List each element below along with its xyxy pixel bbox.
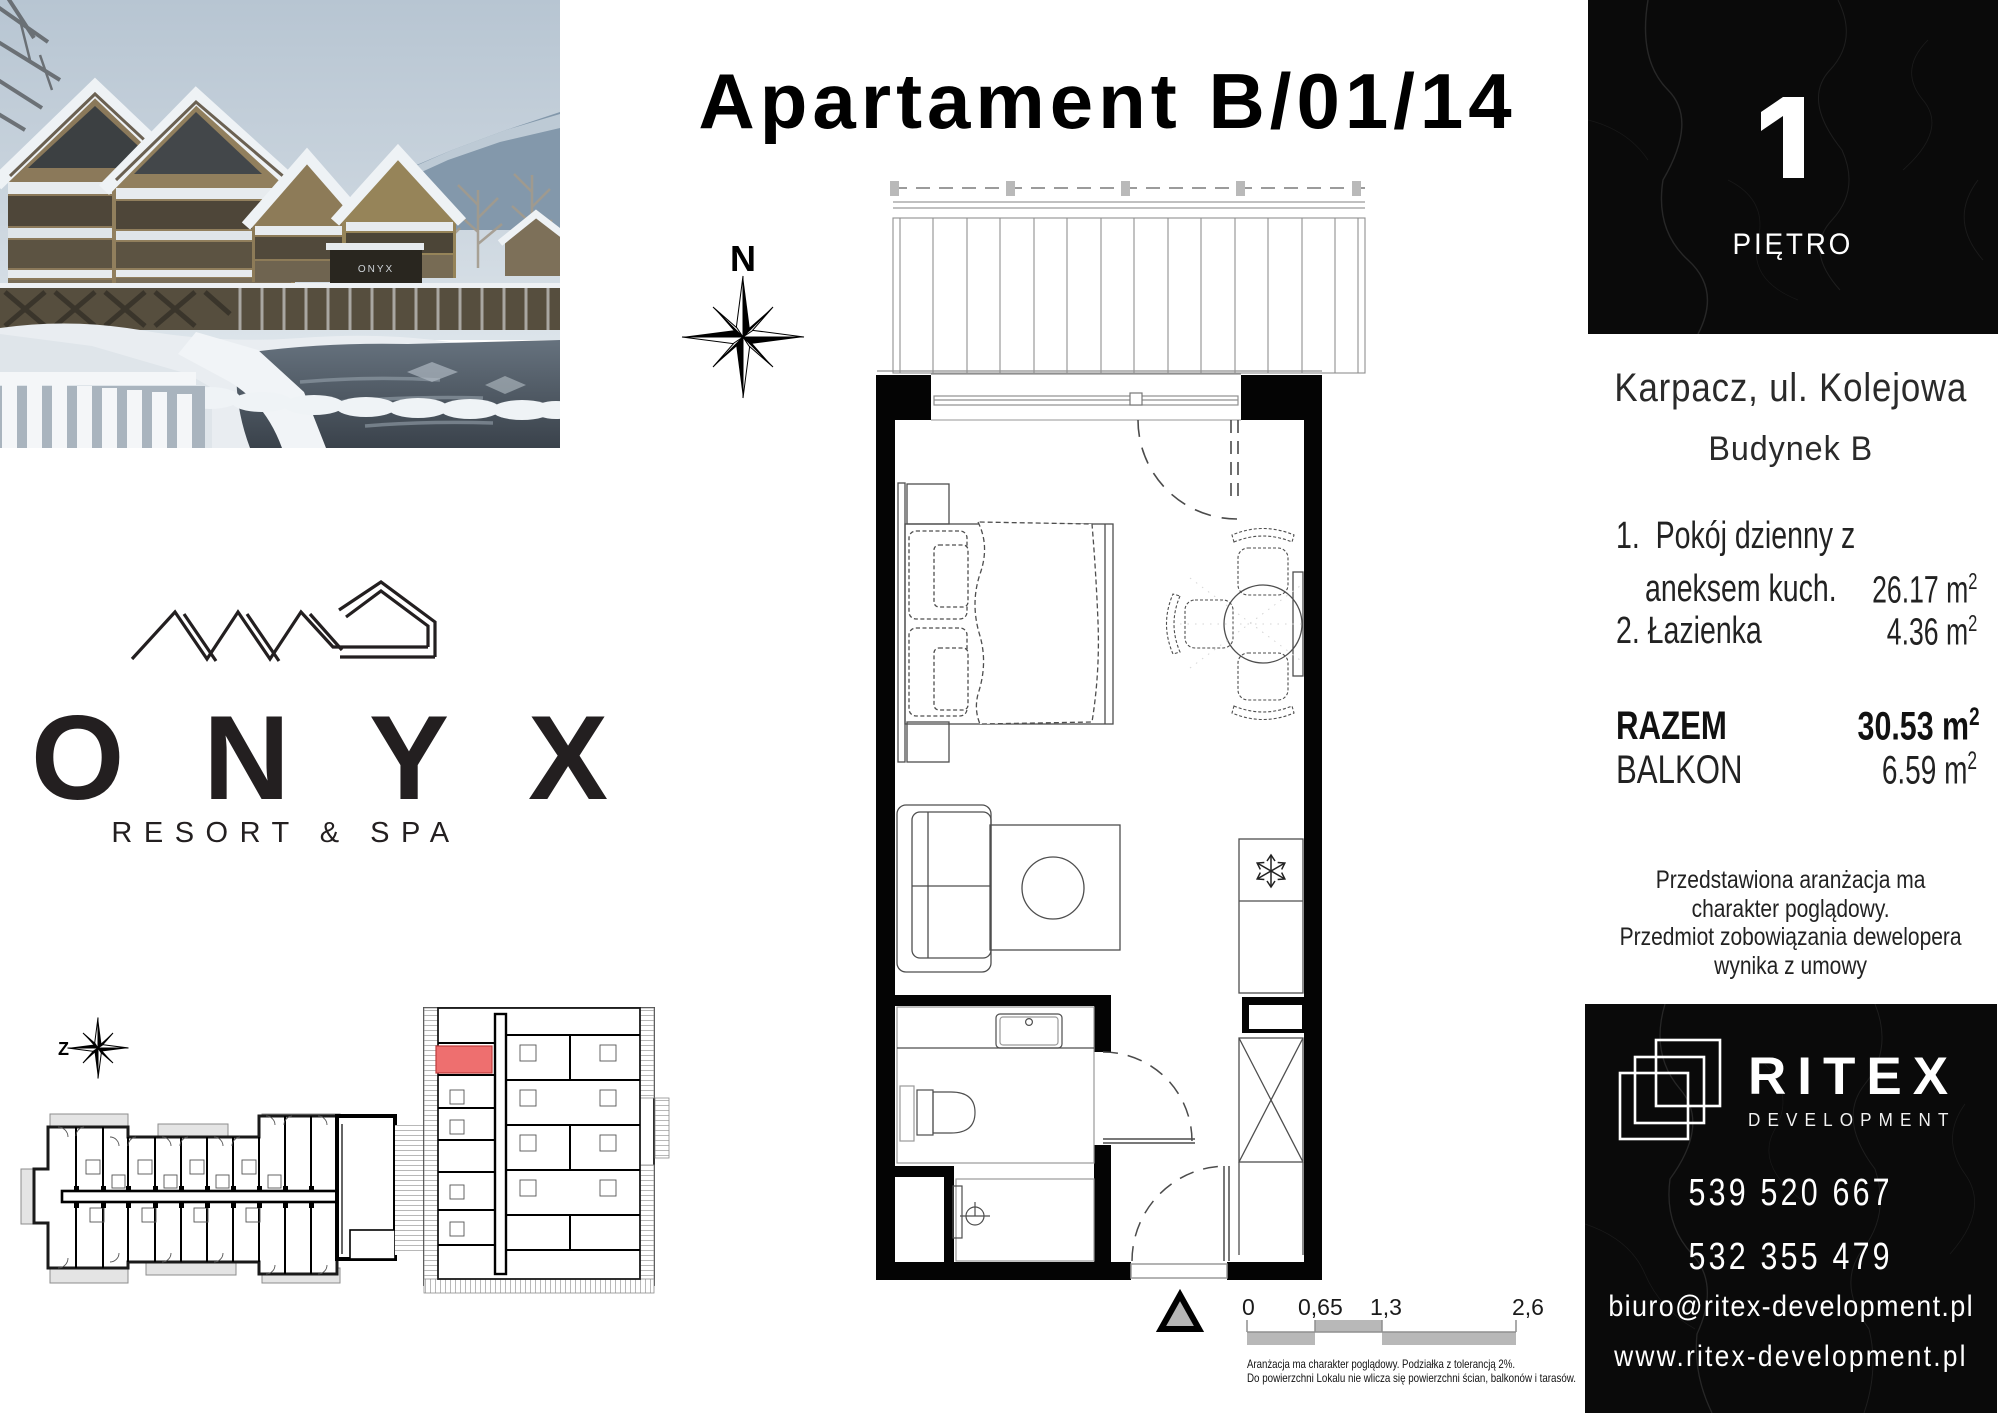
svg-text:2,6: 2,6	[1512, 1294, 1544, 1320]
svg-text:1,3: 1,3	[1370, 1294, 1402, 1320]
svg-text:Do powierzchni Lokalu nie wlic: Do powierzchni Lokalu nie wlicza się pow…	[1247, 1371, 1576, 1385]
svg-text:0: 0	[1242, 1294, 1255, 1320]
svg-text:Aranżacja ma charakter poglądo: Aranżacja ma charakter poglądowy. Podzia…	[1247, 1357, 1515, 1371]
svg-text:N: N	[730, 238, 756, 279]
svg-text:Z: Z	[58, 1039, 69, 1059]
svg-text:0,65: 0,65	[1298, 1294, 1343, 1320]
